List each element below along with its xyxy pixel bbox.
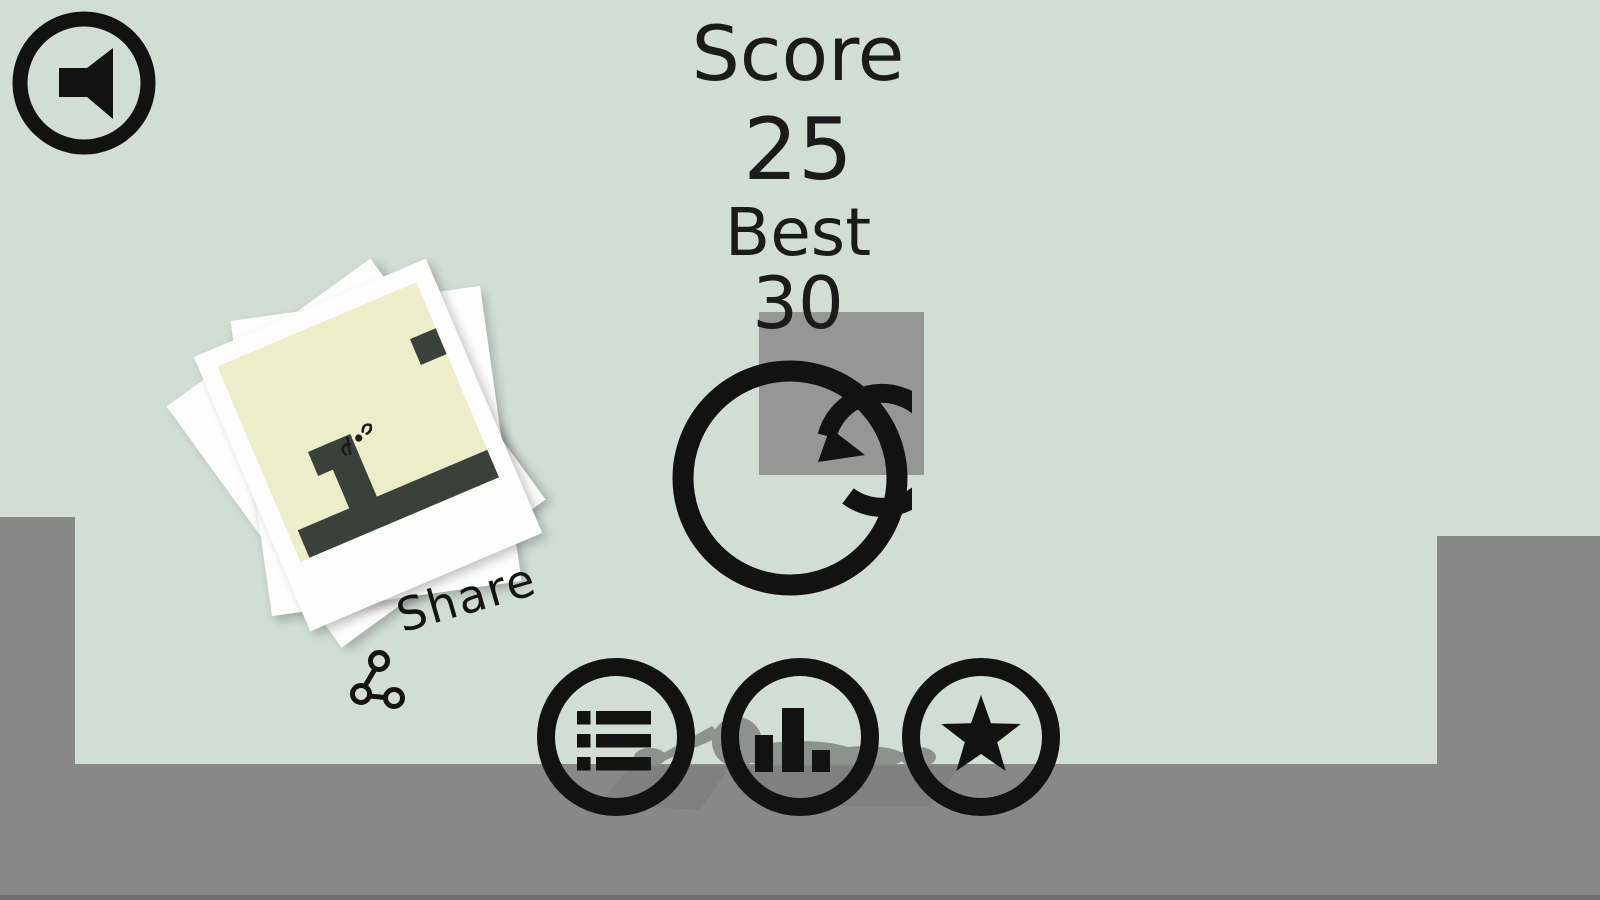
rate-button[interactable] xyxy=(893,649,1069,825)
ground-edge xyxy=(0,895,1600,900)
best-value: 30 xyxy=(598,261,998,345)
speaker-icon xyxy=(59,48,113,119)
left-platform xyxy=(0,517,75,767)
bar-chart-icon xyxy=(755,708,830,772)
menu-button[interactable] xyxy=(528,649,704,825)
stats-button[interactable] xyxy=(712,649,888,825)
score-label: Score xyxy=(598,9,998,98)
share-icon[interactable] xyxy=(336,638,412,714)
list-icon xyxy=(577,711,651,771)
best-label: Best xyxy=(598,194,998,271)
right-platform xyxy=(1437,536,1600,767)
restart-button[interactable] xyxy=(668,356,912,600)
star-icon xyxy=(941,695,1021,771)
snapshot-obstacle-block xyxy=(410,328,447,365)
sound-button[interactable] xyxy=(8,7,160,159)
score-value: 25 xyxy=(598,100,998,200)
game-over-screen: Score 25 Best 30 xyxy=(0,0,1600,900)
